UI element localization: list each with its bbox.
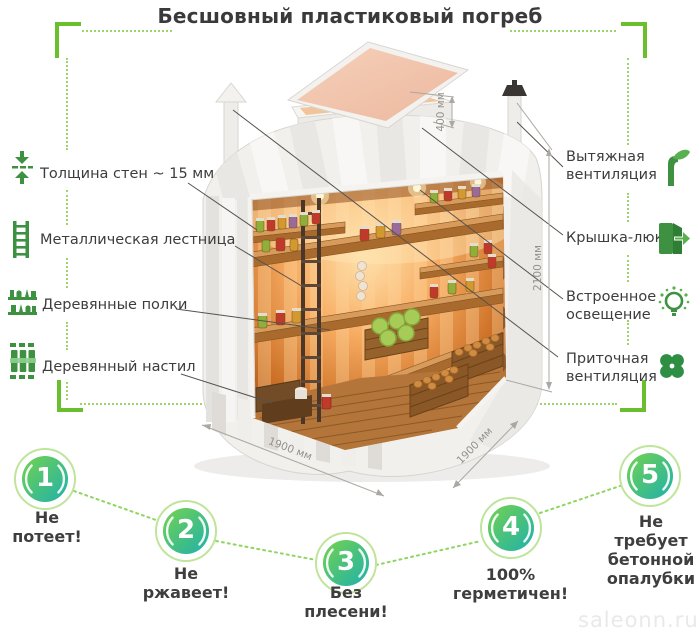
exhaust-vent-icon	[660, 148, 690, 186]
dimension-neck-height: 400 мм	[410, 92, 455, 132]
corner-bracket-top-right	[621, 22, 647, 58]
cabbage-crate	[365, 309, 428, 360]
feature-badge-5: 5	[618, 444, 682, 508]
dotted-line	[627, 255, 629, 282]
hatch-icon	[657, 221, 690, 256]
svg-text:1900 мм: 1900 мм	[266, 435, 313, 463]
infographic-page: Бесшовный пластиковый погреб	[0, 0, 700, 640]
potato-crates	[410, 333, 503, 417]
light-icon	[657, 285, 691, 319]
feature-badge-1: 1	[13, 447, 77, 511]
label-wooden-shelves: Деревянные полки	[42, 296, 187, 314]
wall-thickness-icon	[10, 151, 34, 185]
dotted-line	[510, 30, 616, 32]
corner-bracket-top-left	[55, 22, 81, 58]
dimension-base-depth: 1900 мм	[453, 421, 518, 488]
label-wall-thickness: Толщина стен ~ 15 мм	[40, 165, 214, 183]
feature-badge-4: 4	[479, 496, 543, 560]
wooden-floor	[253, 366, 506, 450]
preserve-jars	[256, 184, 496, 328]
ground-shadow	[194, 450, 550, 482]
feature-badge-2: 2	[154, 499, 218, 563]
feature-label-2: Не ржавеет!	[136, 564, 236, 602]
label-metal-ladder: Металлическая лестница	[40, 231, 235, 249]
dimension-body-height: 2100 мм	[506, 103, 552, 392]
supply-vent-pipe	[216, 83, 246, 185]
pointer-lines	[176, 110, 563, 403]
supply-vent-icon	[658, 352, 686, 380]
badge-number: 1	[13, 447, 77, 511]
dimension-base-width: 1900 мм	[202, 424, 384, 496]
svg-text:400 мм: 400 мм	[435, 92, 447, 131]
wooden-shelves	[252, 193, 503, 409]
svg-text:1900 мм: 1900 мм	[455, 425, 496, 466]
badge-number: 2	[154, 499, 218, 563]
svg-text:2100 мм: 2100 мм	[532, 245, 544, 291]
feature-label-5: Не требует бетонной опалубки	[602, 512, 700, 588]
dotted-line	[497, 403, 617, 405]
metal-ladder	[301, 198, 321, 424]
badge-number: 5	[618, 444, 682, 508]
hatch-lid	[288, 42, 468, 128]
feature-label-4: 100% герметичен!	[433, 565, 588, 603]
interior-ceiling	[250, 174, 503, 211]
floor-crates	[256, 380, 331, 424]
dotted-line	[66, 382, 68, 400]
garlic-strand	[356, 262, 368, 301]
hatch-neck	[292, 93, 452, 158]
cellar-interior	[235, 160, 525, 455]
label-built-in-lighting: Встроенное освещение	[566, 288, 661, 324]
cutaway-steps	[503, 206, 512, 372]
label-supply-ventilation: Приточная вентиляция	[566, 350, 661, 386]
cellar-body	[198, 91, 542, 476]
page-title: Бесшовный пластиковый погреб	[0, 4, 700, 28]
feature-label-1: Не потеет!	[2, 508, 92, 546]
label-exhaust-ventilation: Вытяжная вентиляция	[566, 148, 661, 184]
dotted-line	[66, 190, 68, 225]
dotted-line	[627, 193, 629, 222]
watermark: saleonn.ru	[578, 608, 699, 632]
base-ribs	[212, 392, 382, 470]
ladder-icon	[12, 221, 30, 258]
label-wooden-decking: Деревянный настил	[42, 358, 196, 376]
exhaust-vent-pipe	[502, 80, 527, 151]
dotted-line	[627, 58, 629, 145]
dotted-line	[82, 30, 172, 32]
decking-icon	[10, 343, 36, 380]
dotted-line	[66, 258, 68, 288]
dotted-line	[66, 322, 68, 350]
interior-lights	[311, 174, 486, 205]
shelves-icon	[8, 287, 38, 317]
feature-label-3: Без плесени!	[291, 583, 401, 621]
corner-bracket-bottom-left	[57, 380, 83, 412]
dotted-line	[66, 58, 68, 150]
badge-number: 4	[479, 496, 543, 560]
label-hatch-cover: Крышка-люк	[566, 229, 663, 247]
dotted-line	[80, 403, 210, 405]
